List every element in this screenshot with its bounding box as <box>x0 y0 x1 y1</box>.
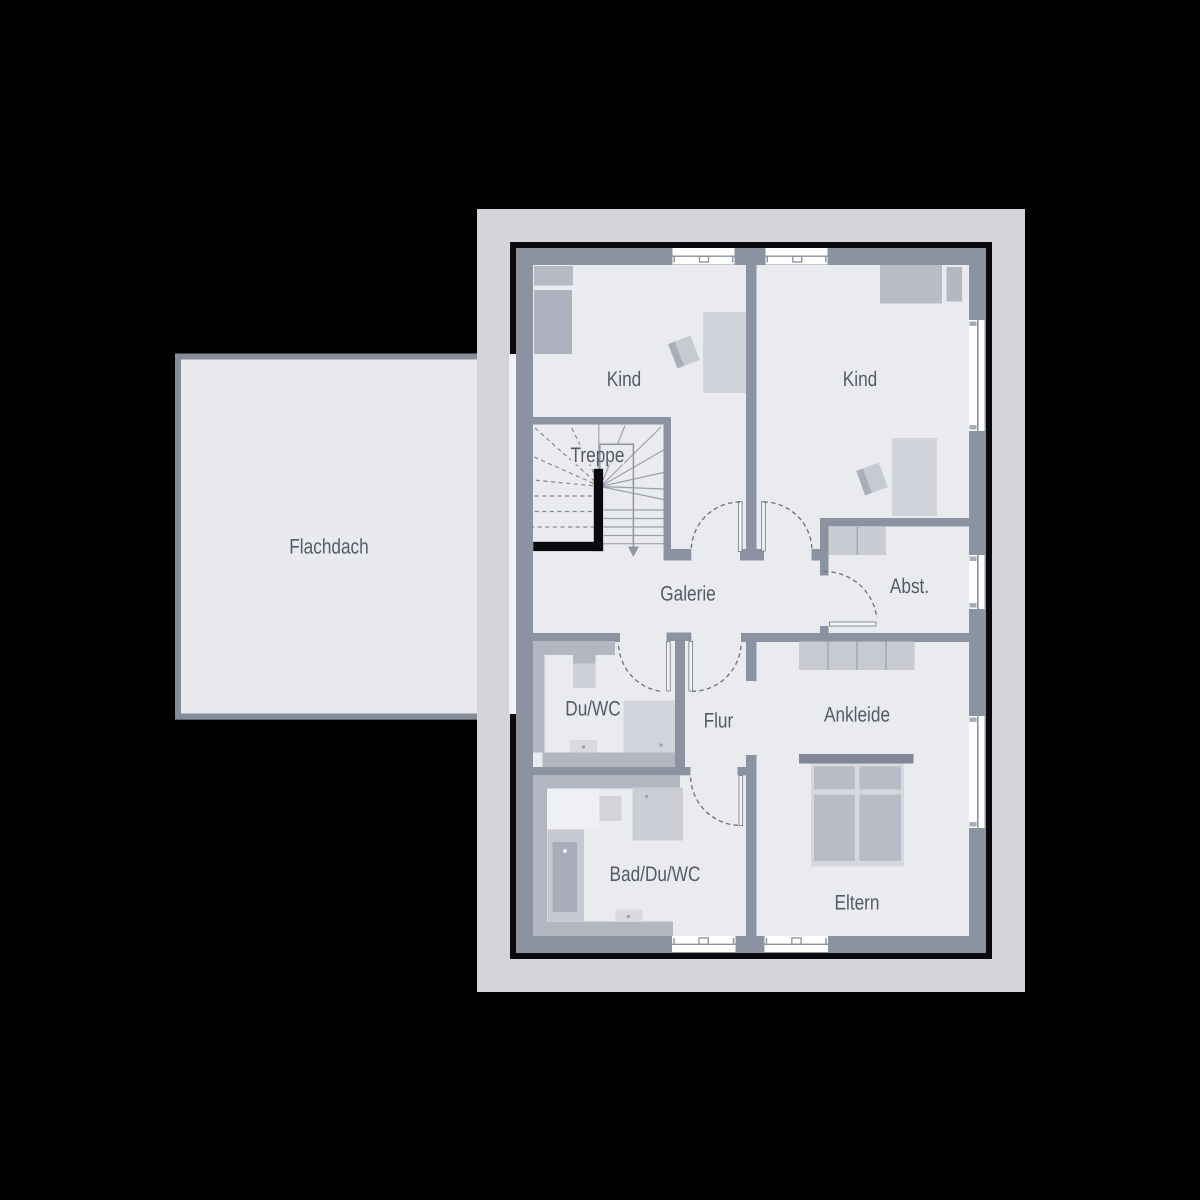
svg-text:Flur: Flur <box>704 710 734 733</box>
svg-text:Ankleide: Ankleide <box>824 704 890 727</box>
svg-text:Eltern: Eltern <box>835 892 880 915</box>
svg-text:Kind: Kind <box>607 368 641 391</box>
svg-text:Abst.: Abst. <box>890 575 929 598</box>
svg-text:Kind: Kind <box>843 368 877 391</box>
svg-text:Treppe: Treppe <box>571 444 625 467</box>
svg-text:Bad/Du/WC: Bad/Du/WC <box>610 863 701 886</box>
svg-text:Flachdach: Flachdach <box>289 536 368 559</box>
svg-text:Du/WC: Du/WC <box>565 698 620 721</box>
svg-text:Galerie: Galerie <box>660 583 716 606</box>
